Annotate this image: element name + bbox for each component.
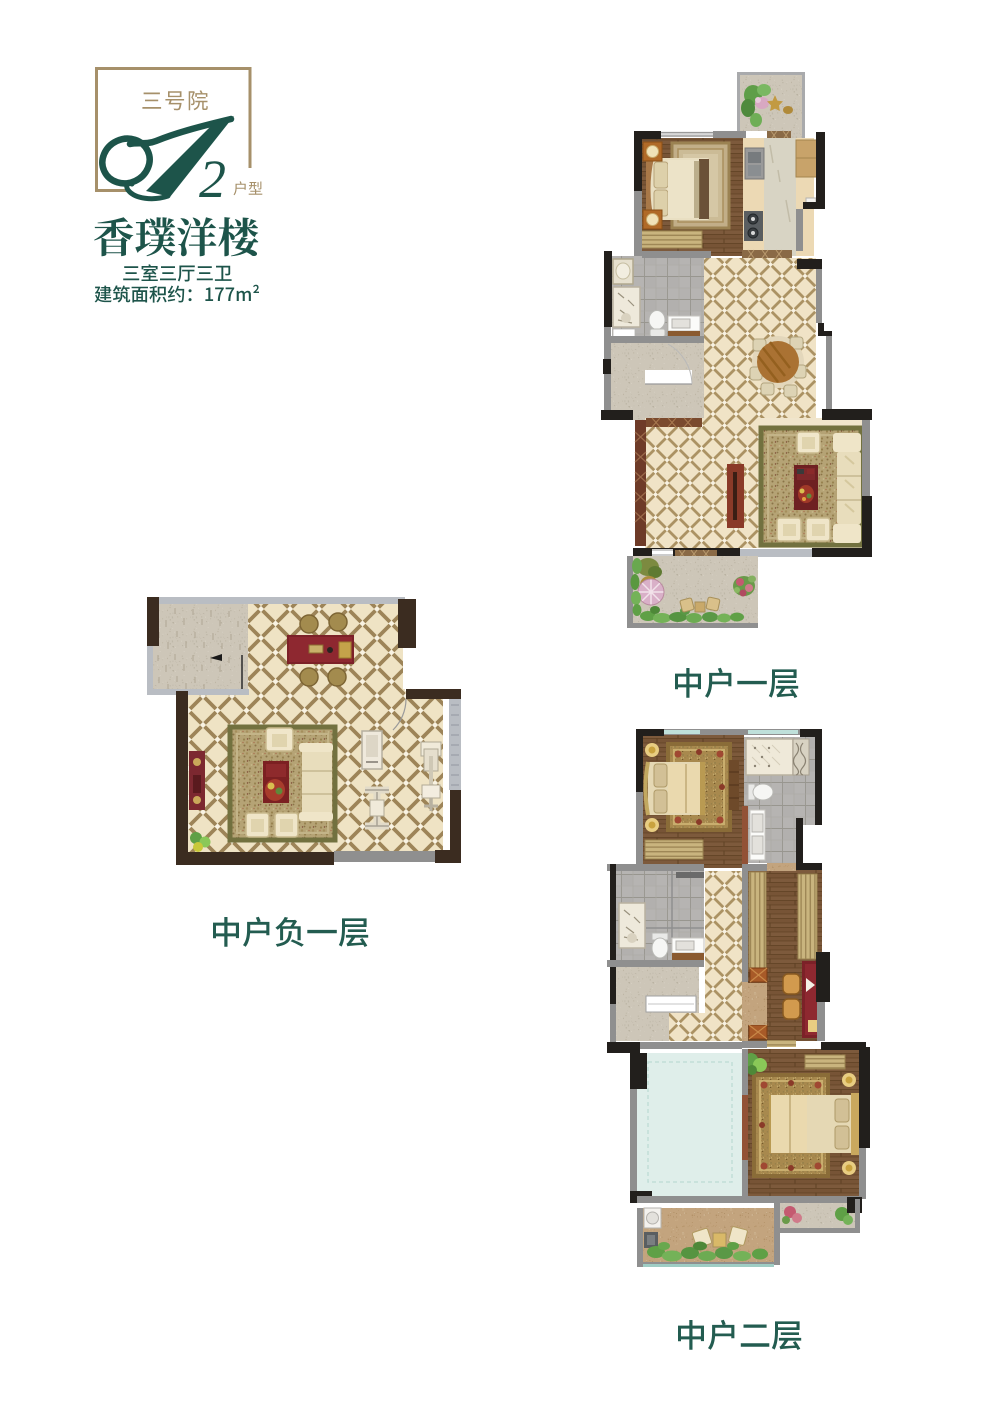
- svg-text:2: 2: [199, 149, 226, 209]
